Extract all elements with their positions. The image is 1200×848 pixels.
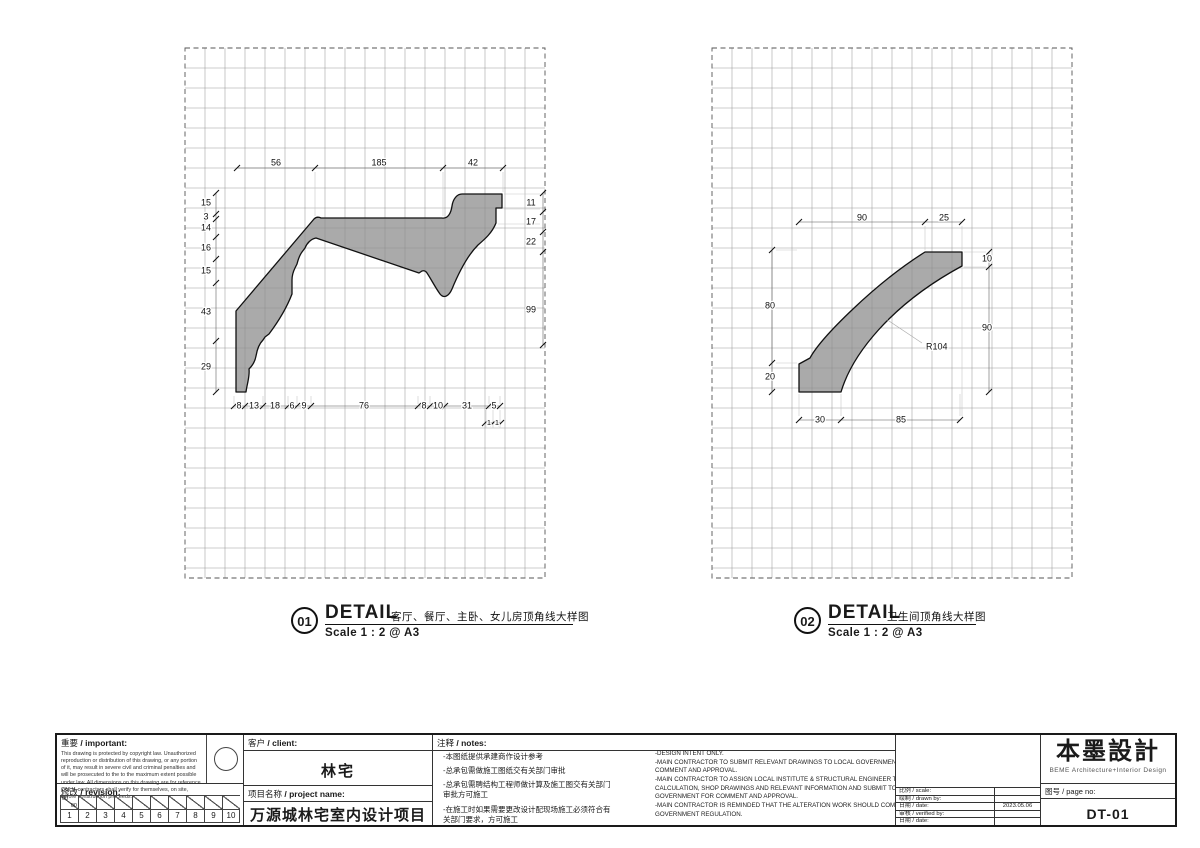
revision-number: 9 [204, 810, 222, 823]
dim-label: 43 [201, 306, 211, 316]
page-number: DT-01 [1041, 806, 1175, 822]
revision-number: 1 [60, 810, 78, 823]
dim-label: 8 [236, 400, 241, 410]
dim-label: 56 [271, 157, 281, 167]
revision-cell [132, 795, 150, 810]
revision-number: 7 [168, 810, 186, 823]
note-item-en: -MAIN CONTRACTOR TO ASSIGN LOCAL INSTITU… [655, 776, 895, 802]
dim-label: 3 [203, 211, 208, 221]
revision-number: 5 [132, 810, 150, 823]
detail-1-underline [325, 624, 573, 625]
dim-label: 10 [433, 400, 443, 410]
notes-header: 注释 / notes: [433, 735, 895, 751]
dim-label: 80 [765, 300, 775, 310]
revision-table: 000012345678910 [60, 795, 240, 823]
detail-2-caption: 卫生间顶角线大样图 [887, 609, 986, 624]
dim-label: 14 [201, 222, 211, 232]
company-subtitle: BEME Architecture+Interior Design [1041, 767, 1175, 774]
drawing-sheet: 5618542153141615432911172299813186976810… [0, 0, 1200, 848]
important-box: 重要 / important: This drawing is protecte… [57, 735, 207, 783]
revision-cell: 0000 [60, 795, 78, 810]
dim-label: 18 [270, 400, 280, 410]
field-label: 绘制 / drawn by: [896, 796, 994, 803]
note-item-en: -MAIN CONTRACTOR IS REMINDED THAT THE AL… [655, 802, 895, 819]
dim-label: 5 [491, 400, 496, 410]
revision-00: 00 [71, 803, 77, 809]
dim-label: 85 [896, 414, 906, 424]
revision-cell [222, 795, 240, 810]
dim-label: 31 [462, 400, 472, 410]
dim-label: 9 [301, 400, 306, 410]
revision-number: 8 [186, 810, 204, 823]
notes-chinese: -本图纸提供承建商作设计参考-总承包需做施工图纸交有关部门审批-总承包需聘结构工… [443, 752, 613, 825]
field-value [994, 788, 1040, 795]
dim-label: 11 [526, 197, 535, 207]
revision-number: 2 [78, 810, 96, 823]
dim-label: 13 [249, 400, 259, 410]
detail-1-molding-profile [236, 194, 502, 392]
field-label: 日期 / date: [896, 803, 994, 810]
field-value [994, 796, 1040, 803]
radius-label: R104 [926, 341, 948, 351]
field-label: 审核 / verified by: [896, 811, 994, 818]
revision-number: 3 [96, 810, 114, 823]
detail-1-scale: Scale 1 : 2 @ A3 [325, 627, 420, 639]
dim-label: 15 [201, 265, 211, 275]
field-label: 日期 / date: [896, 818, 994, 825]
revision-number: 10 [222, 810, 240, 823]
important-revision-section: 重要 / important: This drawing is protecte… [57, 735, 243, 825]
dim-label: 30 [815, 414, 825, 424]
revision-cell [204, 795, 222, 810]
detail-2-molding-profile [799, 252, 962, 392]
revision-cell [114, 795, 132, 810]
revision-cell [96, 795, 114, 810]
detail-2-underline [828, 624, 976, 625]
detail-drawings-canvas: 5618542153141615432911172299813186976810… [0, 0, 1200, 848]
dim-label: 17 [526, 216, 536, 226]
detail-1-dim-chain-left [213, 190, 219, 395]
note-item-en: -MAIN CONTRACTOR TO SUBMIT RELEVANT DRAW… [655, 759, 895, 776]
pageno-header: 图号 / page no: [1041, 784, 1175, 799]
notes-english: -DESIGN INTENT ONLY.-MAIN CONTRACTOR TO … [655, 750, 895, 819]
dim-label: 22 [526, 236, 536, 246]
dim-label: 1 [495, 418, 499, 427]
revision-cell [168, 795, 186, 810]
revision-number: 4 [114, 810, 132, 823]
dim-label: 29 [201, 361, 211, 371]
project-header: 项目名称 / project name: [244, 786, 432, 802]
field-label: 比例 / scale: [896, 788, 994, 795]
logo-section: 本墨設計 BEME Architecture+Interior Design 图… [1041, 735, 1175, 825]
notes-section: 注释 / notes: -本图纸提供承建商作设计参考-总承包需做施工图纸交有关部… [433, 735, 895, 825]
detail-2-number-bubble: 02 [794, 607, 821, 634]
field-value: 2023.05.06 [994, 803, 1040, 810]
field-row: 审核 / verified by: [896, 810, 1040, 818]
dim-label: 10 [982, 253, 992, 263]
important-header: 重要 / important: [57, 735, 206, 750]
dim-label: 99 [526, 304, 536, 314]
revision-number: 6 [150, 810, 168, 823]
fields-section: 比例 / scale:绘制 / drawn by:日期 / date:2023.… [896, 735, 1040, 825]
project-name: 万源城林宅室内设计项目 [244, 804, 432, 825]
field-value [994, 811, 1040, 818]
revision-cell [78, 795, 96, 810]
notes-label-en: / notes: [456, 738, 486, 748]
dim-label: 16 [201, 242, 211, 252]
detail-1-title: DETAIL [325, 602, 398, 624]
dim-label: 90 [857, 212, 867, 222]
field-row: 日期 / date: [896, 817, 1040, 825]
client-project-section: 客户 / client: 林宅 项目名称 / project name: 万源城… [244, 735, 432, 825]
title-block: 重要 / important: This drawing is protecte… [55, 733, 1177, 827]
client-label-zh: 客户 [248, 738, 265, 748]
dim-label: 185 [371, 157, 386, 167]
client-header: 客户 / client: [244, 735, 432, 751]
dim-label: 8 [421, 400, 426, 410]
dim-label: 90 [982, 322, 992, 332]
detail-1-caption: 客厅、餐厅、主卧、女儿房顶角线大样图 [391, 609, 589, 624]
dim-label: 76 [359, 400, 369, 410]
dim-label: 42 [468, 157, 478, 167]
detail-2-number: 02 [800, 614, 814, 629]
field-row: 日期 / date:2023.05.06 [896, 802, 1040, 810]
note-item-zh: -本图纸提供承建商作设计参考 [443, 752, 613, 762]
fields-rows: 比例 / scale:绘制 / drawn by:日期 / date:2023.… [896, 787, 1040, 825]
note-item-zh: -总承包需做施工图纸交有关部门审批 [443, 766, 613, 776]
company-logo: 本墨設計 [1041, 737, 1175, 767]
project-label-en: / project name: [284, 789, 344, 799]
detail-2-scale: Scale 1 : 2 @ A3 [828, 627, 923, 639]
field-row: 比例 / scale: [896, 787, 1040, 795]
note-item-zh: -在施工时如果需要更改设计配现场施工必须符合有关部门要求，方可施工 [443, 805, 613, 825]
client-label-en: / client: [267, 738, 297, 748]
note-item-zh: -总承包需聘结构工程师做计算及施工图交有关部门审批方可施工 [443, 780, 613, 800]
note-item-en: -DESIGN INTENT ONLY. [655, 750, 895, 759]
detail-1-number: 01 [297, 614, 311, 629]
dim-label: 6 [289, 400, 294, 410]
project-label-zh: 项目名称 [248, 789, 282, 799]
dim-label: 25 [939, 212, 949, 222]
dim-label: 1 [487, 418, 491, 427]
dim-label: 20 [765, 371, 775, 381]
revision-cell [150, 795, 168, 810]
important-label-en: / important: [80, 738, 127, 748]
client-name: 林宅 [244, 760, 432, 781]
field-row: 绘制 / drawn by: [896, 795, 1040, 803]
field-value [994, 818, 1040, 825]
revision-00: 00 [62, 796, 68, 802]
stamp-circle [214, 747, 238, 771]
important-label-zh: 重要 [61, 738, 78, 748]
notes-label-zh: 注释 [437, 738, 454, 748]
detail-1-number-bubble: 01 [291, 607, 318, 634]
dim-label: 15 [201, 197, 211, 207]
revision-cell [186, 795, 204, 810]
